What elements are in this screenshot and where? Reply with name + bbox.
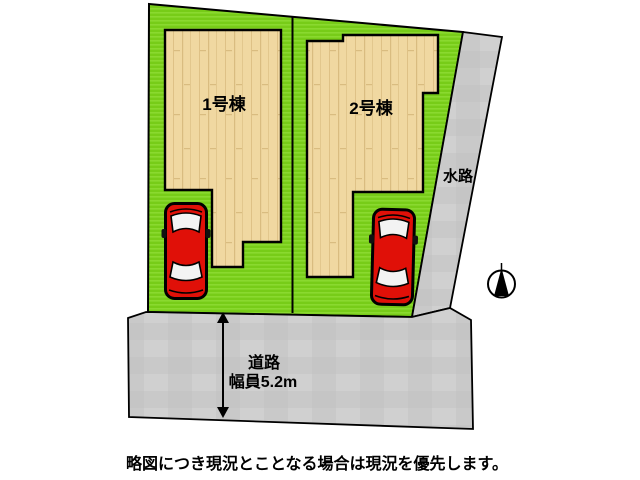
site-plan-canvas: 1号棟 2号棟 水路 道路 幅員5.2m 略図につき現況とことなる場合は現況を優… [0,0,640,480]
north-compass-icon [488,263,515,298]
waterway-label: 水路 [443,167,474,185]
car2-red-car-topview [367,209,418,305]
car1-red-car-topview [162,204,211,299]
road-area [128,308,473,429]
building2-label: 2号棟 [349,98,393,118]
building1-label: 1号棟 [202,94,246,114]
site-plan-svg: 1号棟 2号棟 水路 道路 幅員5.2m 略図につき現況とことなる場合は現況を優… [0,0,640,480]
road-width-label: 幅員5.2m [229,372,297,391]
road-name-label: 道路 [248,353,281,372]
caption-text: 略図につき現況とことなる場合は現況を優先します。 [126,454,508,473]
